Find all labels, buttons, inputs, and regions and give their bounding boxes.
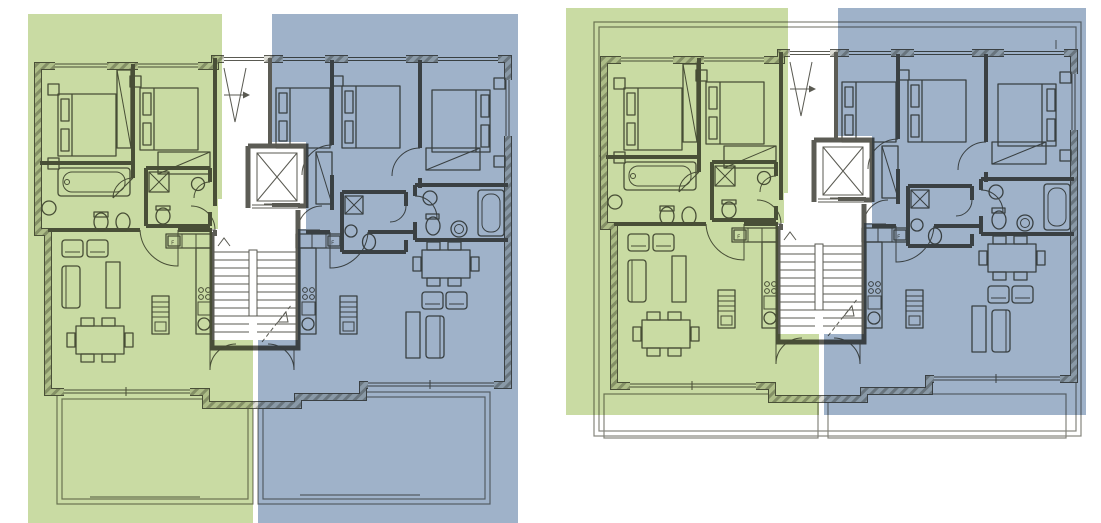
floor-plans-figure: F [0, 0, 1101, 523]
floor-plans-canvas: F [0, 0, 1101, 523]
plan-right [566, 8, 1086, 438]
plan-left [28, 14, 518, 523]
left-unit-overlay-green [566, 8, 819, 415]
